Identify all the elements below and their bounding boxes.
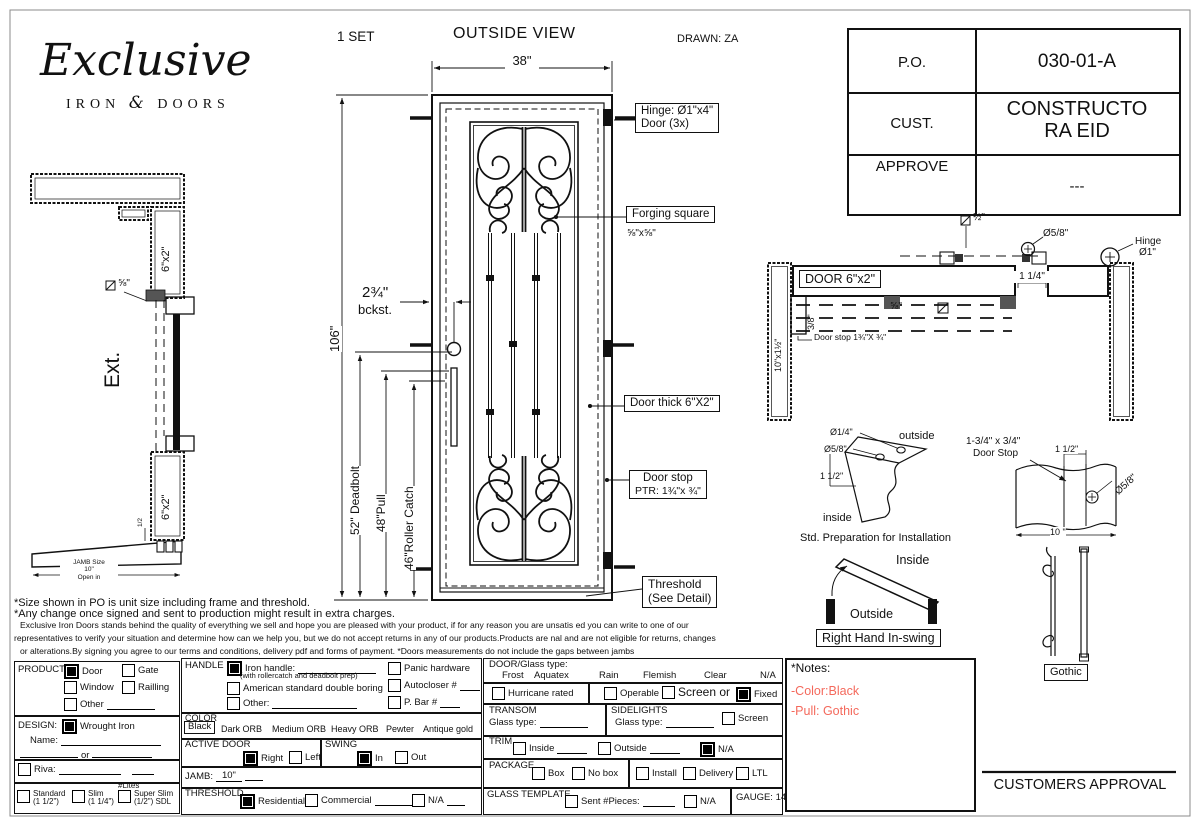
box-label: Box: [548, 768, 564, 779]
plan-58-label: ⅝": [890, 301, 902, 313]
pbar-field[interactable]: [440, 698, 460, 708]
threshold-note: Threshold (See Detail): [642, 576, 717, 608]
template-na-checkbox[interactable]: [684, 795, 697, 808]
jamb-size-line3: Open in: [60, 574, 118, 581]
trim-inside-field[interactable]: [557, 744, 587, 754]
screen-checkbox[interactable]: [662, 686, 675, 699]
jamb-row: JAMB: 10": [185, 770, 263, 782]
design-name-label: Name:: [30, 735, 58, 746]
handle-other-label: Other:: [243, 698, 269, 709]
sent-pieces-field[interactable]: [643, 797, 675, 807]
trim-inside-option: Inside: [513, 742, 587, 755]
door-option-label: Door: [82, 666, 103, 677]
slim-sub-label: (1 1/4"): [88, 798, 114, 806]
residential-label: Residential: [258, 796, 305, 807]
swing-caption: Right Hand In-swing: [816, 629, 941, 647]
nobox-label: No box: [588, 768, 618, 779]
handle-american-option: American standard double boring: [227, 682, 383, 695]
active-right-option: Right: [243, 751, 283, 766]
dim-roller-label: 46"Roller Catch: [402, 486, 416, 570]
glass-aquatex[interactable]: Aquatex: [534, 671, 569, 682]
threshold-note-line2: (See Detail): [648, 592, 711, 606]
color-pewter[interactable]: Pewter: [386, 724, 414, 734]
pbar-checkbox[interactable]: [388, 696, 401, 709]
standard-checkbox[interactable]: [17, 790, 30, 803]
commercial-field[interactable]: [375, 796, 413, 806]
template-na-label: N/A: [700, 796, 716, 807]
trim-na-label: N/A: [718, 744, 734, 755]
left-dia-size: ⅝": [118, 278, 130, 290]
railling-checkbox[interactable]: [122, 681, 135, 694]
hinge-note-line2: Door (3x): [641, 118, 713, 131]
threshold-na-label: N/A: [428, 795, 444, 806]
hinge-note-line1: Hinge: Ø1"x4": [641, 105, 713, 118]
trim-outside-option: Outside: [598, 742, 680, 755]
transom-glass-label: Glass type:: [489, 717, 537, 728]
glass-na[interactable]: N/A: [760, 671, 776, 682]
hinge-note: Hinge: Ø1"x4" Door (3x): [635, 103, 719, 133]
jamb-label: JAMB:: [185, 771, 213, 782]
logo-script: Exclusive: [40, 36, 252, 87]
cust-label: CUST.: [849, 115, 975, 132]
glass-flemish[interactable]: Flemish: [643, 671, 676, 682]
active-left-label: Left: [305, 752, 321, 763]
install-checkbox[interactable]: [636, 767, 649, 780]
sidelights-glass-field[interactable]: [666, 718, 714, 728]
commercial-checkbox[interactable]: [305, 794, 318, 807]
ltl-label: LTL: [752, 768, 768, 779]
threshold-residential-option: Residential: [240, 794, 305, 809]
prep-inside-label: inside: [823, 512, 852, 525]
glass-rain[interactable]: Rain: [599, 671, 619, 682]
set-count: 1 SET: [337, 29, 375, 45]
plan-dia58-label: Ø5/8": [1043, 228, 1068, 240]
notes-box: [785, 658, 976, 812]
tube-bottom-label: 6"x2": [160, 494, 172, 520]
trim-label: TRIM: [489, 737, 512, 748]
thickness-note: Door thick 6"X2": [624, 395, 720, 412]
sidelights-screen-option: Screen: [722, 712, 768, 725]
threshold-na-option: N/A: [412, 794, 465, 807]
dim-pull-label: 48"Pull: [374, 494, 388, 532]
backset-label: bckst.: [358, 303, 392, 318]
commercial-label: Commercial: [321, 795, 372, 806]
color-mediumorb[interactable]: Medium ORB: [272, 724, 326, 734]
po-table: P.O. 030-01-A CUST. CONSTRUCTO RA EID AP…: [847, 28, 1181, 216]
riva-checkbox[interactable]: [18, 763, 31, 776]
approve-value: ---: [975, 178, 1179, 195]
threshold-na-field[interactable]: [447, 796, 465, 806]
package-label: PACKAGE: [489, 761, 534, 772]
note-pull: -Pull: Gothic: [791, 704, 859, 718]
dim-height-label: 106": [327, 326, 342, 352]
sent-pieces-label: Sent #Pieces:: [581, 796, 640, 807]
note-color: -Color:Black: [791, 684, 859, 698]
product-other-label: Other: [80, 699, 104, 710]
product-railling-option: Railling: [122, 681, 169, 694]
swing-in-label: In: [375, 753, 383, 764]
jamb-size-line1: JAMB Size: [60, 559, 118, 566]
tube-top-label: 6"x2": [160, 246, 172, 272]
swing-label: SWING: [325, 740, 357, 751]
operable-option: Operable: [604, 687, 659, 700]
color-heavyorb[interactable]: Heavy ORB: [331, 724, 379, 734]
riva-label: Riva:: [34, 764, 56, 775]
trim-outside-field[interactable]: [650, 744, 680, 754]
dim-width-label: 38": [505, 54, 539, 69]
template-na-option: N/A: [684, 795, 716, 808]
autocloser-option: Autocloser #: [388, 679, 480, 692]
prep-d112-label: 1 1/2": [820, 471, 843, 481]
pbar-option: P. Bar #: [388, 696, 460, 709]
delivery-label: Delivery: [699, 768, 733, 779]
sidelights-glass-label: Glass type:: [615, 717, 663, 728]
panic-checkbox[interactable]: [388, 662, 401, 675]
ltl-checkbox[interactable]: [736, 767, 749, 780]
active-right-label: Right: [261, 753, 283, 764]
american-boring-checkbox[interactable]: [227, 682, 240, 695]
package-install-option: Install: [636, 767, 677, 780]
grid-standard-option: Standard(1 1/2"): [17, 790, 65, 807]
trim-na-checkbox[interactable]: [700, 742, 715, 757]
sidelights-glass-row: Glass type:: [615, 717, 714, 728]
residential-checkbox[interactable]: [240, 794, 255, 809]
logo-subtitle: IRON & DOORS: [66, 94, 230, 114]
design-label: DESIGN:: [18, 720, 57, 731]
disclaimer-line5: or alterations.By signing you agree to o…: [20, 647, 634, 657]
riva-field2[interactable]: [132, 765, 154, 775]
po-label: P.O.: [849, 54, 975, 71]
jamb-field[interactable]: [245, 771, 263, 781]
swing-outside-label: Outside: [850, 607, 893, 621]
swing-out-checkbox[interactable]: [395, 751, 408, 764]
trim-inside-checkbox[interactable]: [513, 742, 526, 755]
or-line-left: [20, 748, 78, 758]
customers-approval-label: CUSTOMERS APPROVAL: [984, 777, 1176, 794]
fixed-label: Fixed: [754, 689, 777, 700]
doorstop-note-line1: Door stop: [635, 472, 701, 485]
trim-outside-checkbox[interactable]: [598, 742, 611, 755]
stopdetail-size-label: 1-3/4" x 3/4": [966, 436, 1020, 448]
handle-label: HANDLE: [185, 661, 224, 672]
disclaimer-line3: Exclusive Iron Doors stands behind the q…: [20, 621, 689, 631]
sent-pieces-checkbox[interactable]: [565, 795, 578, 808]
prep-d14-label: Ø1/4": [830, 427, 853, 437]
forging-size: ⅝"x⅝": [627, 228, 656, 240]
jamb-value[interactable]: 10": [216, 770, 242, 782]
plan-114-label: 1 1/4": [1014, 271, 1050, 283]
superslim-sub-label: (1/2") SDL: [134, 798, 173, 806]
swing-in-option: In: [357, 751, 383, 766]
plan-38-label: 3/8": [806, 314, 816, 330]
prep-d58-label: Ø5/8": [824, 444, 847, 454]
backset-dim: 2¾": [362, 284, 388, 301]
design-name-row: Name:: [30, 735, 161, 746]
stopdetail-10-label: 10 ": [1050, 527, 1066, 537]
active-door-label: ACTIVE DOOR: [185, 740, 250, 751]
transom-glass-field[interactable]: [540, 718, 588, 728]
trim-outside-label: Outside: [614, 743, 647, 754]
product-gate-option: Gate: [122, 664, 159, 677]
hurricane-checkbox[interactable]: [492, 687, 505, 700]
exterior-label: Ext.: [101, 352, 125, 388]
active-left-checkbox[interactable]: [289, 751, 302, 764]
plan-doorstop-label: Door stop 1¾"X ¾": [814, 333, 886, 343]
left-half-dim: 1/2: [137, 518, 144, 527]
threshold-na-checkbox[interactable]: [412, 794, 425, 807]
trim-na-option: N/A: [700, 742, 734, 757]
dim-deadbolt-label: 52" Deadbolt: [348, 466, 362, 535]
threshold-commercial-option: Commercial: [305, 794, 413, 807]
fixed-option: Fixed: [736, 687, 777, 702]
threshold-label: THRESHOLD: [185, 789, 244, 800]
view-title: OUTSIDE VIEW: [453, 25, 575, 43]
plan-hinge-label2: Ø1": [1139, 247, 1156, 259]
prep-caption: Std. Preparation for Installation: [800, 532, 951, 545]
swing-out-option: Out: [395, 751, 426, 764]
threshold-note-line1: Threshold: [648, 578, 711, 592]
prep-outside-label: outside: [899, 430, 934, 443]
autocloser-label: Autocloser #: [404, 680, 457, 691]
box-checkbox[interactable]: [532, 767, 545, 780]
standard-sub-label: (1 1/2"): [33, 798, 65, 806]
nobox-checkbox[interactable]: [572, 767, 585, 780]
logo-word2: DOORS: [157, 97, 229, 112]
grid-slim-option: Slim(1 1/4"): [72, 790, 114, 807]
trim-inside-label: Inside: [529, 743, 554, 754]
po-table-row-divider1: [849, 92, 1179, 94]
plan-jamb-label: 10"x1½": [773, 339, 783, 372]
stopdetail-name-label: Door Stop: [973, 448, 1018, 460]
grid-superslim-option: Super Slim(1/2") SDL: [118, 790, 173, 807]
color-antiquegold[interactable]: Antique gold: [423, 724, 473, 734]
wrought-iron-checkbox[interactable]: [62, 719, 77, 734]
stopdetail-112-label: 1 1/2": [1055, 444, 1078, 454]
swing-inside-label: Inside: [896, 553, 929, 567]
jamb-size-note: JAMB Size 10" Open in: [60, 559, 118, 581]
product-label: PRODUCT:: [18, 664, 67, 675]
sent-pieces-option: Sent #Pieces:: [565, 795, 675, 808]
operable-checkbox[interactable]: [604, 687, 617, 700]
product-other-option: Other: [64, 698, 155, 711]
doorstop-note-line2: PTR: 1¾"x ¾": [635, 485, 701, 497]
screen-option: Screen or: [662, 685, 730, 699]
design-name-field[interactable]: [61, 736, 161, 746]
pbar-label: P. Bar #: [404, 697, 437, 708]
package-box-option: Box: [532, 767, 564, 780]
or-line-right: [92, 748, 152, 758]
fixed-checkbox[interactable]: [736, 687, 751, 702]
approve-label: APPROVE: [849, 158, 975, 175]
color-selected[interactable]: Black: [184, 721, 215, 734]
drawing-sheet: { "page": {"set": "1 SET", "view_title":…: [0, 0, 1200, 832]
slim-checkbox[interactable]: [72, 790, 85, 803]
delivery-checkbox[interactable]: [683, 767, 696, 780]
sidelights-screen-label: Screen: [738, 713, 768, 724]
railling-option-label: Railling: [138, 682, 169, 693]
active-right-checkbox[interactable]: [243, 751, 258, 766]
gate-option-label: Gate: [138, 665, 159, 676]
window-checkbox[interactable]: [64, 681, 77, 694]
plan-half-label: ½": [973, 212, 985, 224]
riva-field[interactable]: [59, 765, 121, 775]
door-checkbox[interactable]: [64, 664, 79, 679]
logo-ampersand-icon: &: [129, 93, 149, 113]
plan-door-label: DOOR 6"x2": [799, 270, 881, 288]
swing-out-label: Out: [411, 752, 426, 763]
handle-other-checkbox[interactable]: [227, 697, 240, 710]
swing-in-checkbox[interactable]: [357, 751, 372, 766]
product-other-field[interactable]: [107, 700, 155, 710]
design-or-row: or: [20, 748, 152, 762]
riva-row: Riva:: [18, 763, 154, 776]
po-table-row-divider2: [849, 154, 1179, 156]
disclaimer-line2: *Any change once signed and sent to prod…: [14, 608, 395, 621]
panic-label: Panic hardware: [404, 663, 470, 674]
doorstop-note: Door stop PTR: 1¾"x ¾": [629, 470, 707, 499]
hurricane-label: Hurricane rated: [508, 688, 573, 699]
pull-caption: Gothic: [1044, 664, 1088, 681]
transom-label: TRANSOM: [489, 706, 537, 717]
design-wrought-option: Wrought Iron: [62, 719, 135, 734]
signature-line[interactable]: [982, 770, 1176, 774]
american-boring-label: American standard double boring: [243, 683, 383, 694]
glass-clear[interactable]: Clear: [704, 671, 727, 682]
autocloser-checkbox[interactable]: [388, 679, 401, 692]
po-value: 030-01-A: [975, 51, 1179, 73]
cust-value: CONSTRUCTO RA EID: [1002, 98, 1152, 142]
panic-option: Panic hardware: [388, 662, 470, 675]
package-delivery-option: Delivery: [683, 767, 733, 780]
notes-title: *Notes:: [791, 662, 830, 676]
install-label: Install: [652, 768, 677, 779]
autocloser-field[interactable]: [460, 681, 480, 691]
operable-label: Operable: [620, 688, 659, 699]
package-ltl-option: LTL: [736, 767, 768, 780]
wrought-iron-label: Wrought Iron: [80, 721, 135, 732]
iron-handle-note: (with rollercatch and deadbolt prep): [240, 672, 358, 681]
sidelights-label: SIDELIGHTS: [611, 706, 668, 717]
forging-note: Forging square: [626, 206, 715, 223]
handle-other-field[interactable]: [272, 699, 357, 709]
product-other-checkbox[interactable]: [64, 698, 77, 711]
sidelights-screen-checkbox[interactable]: [722, 712, 735, 725]
color-darkorb[interactable]: Dark ORB: [221, 724, 262, 734]
gauge-value: GAUGE: 14: [736, 793, 786, 804]
glass-template-label: GLASS TEMPLATE: [487, 790, 571, 801]
drawn-by: DRAWN: ZA: [677, 33, 738, 46]
active-left-option: Left: [289, 751, 321, 764]
window-option-label: Window: [80, 682, 114, 693]
jamb-size-line2: 10": [60, 566, 118, 573]
product-door-option: Door: [64, 664, 103, 679]
hurricane-option: Hurricane rated: [492, 687, 573, 700]
logo-word1: IRON: [66, 97, 120, 112]
screen-label: Screen or: [678, 685, 730, 699]
plan-hinge-label1: Hinge: [1135, 236, 1161, 248]
transom-glass-row: Glass type:: [489, 717, 588, 728]
disclaimer-line4: representatives to verify your situation…: [14, 634, 716, 644]
product-window-option: Window: [64, 681, 114, 694]
glass-frost[interactable]: Frost: [502, 671, 524, 682]
package-nobox-option: No box: [572, 767, 618, 780]
gate-checkbox[interactable]: [122, 664, 135, 677]
superslim-checkbox[interactable]: [118, 790, 131, 803]
handle-other-option: Other:: [227, 697, 357, 710]
design-or-label: or: [81, 750, 89, 761]
